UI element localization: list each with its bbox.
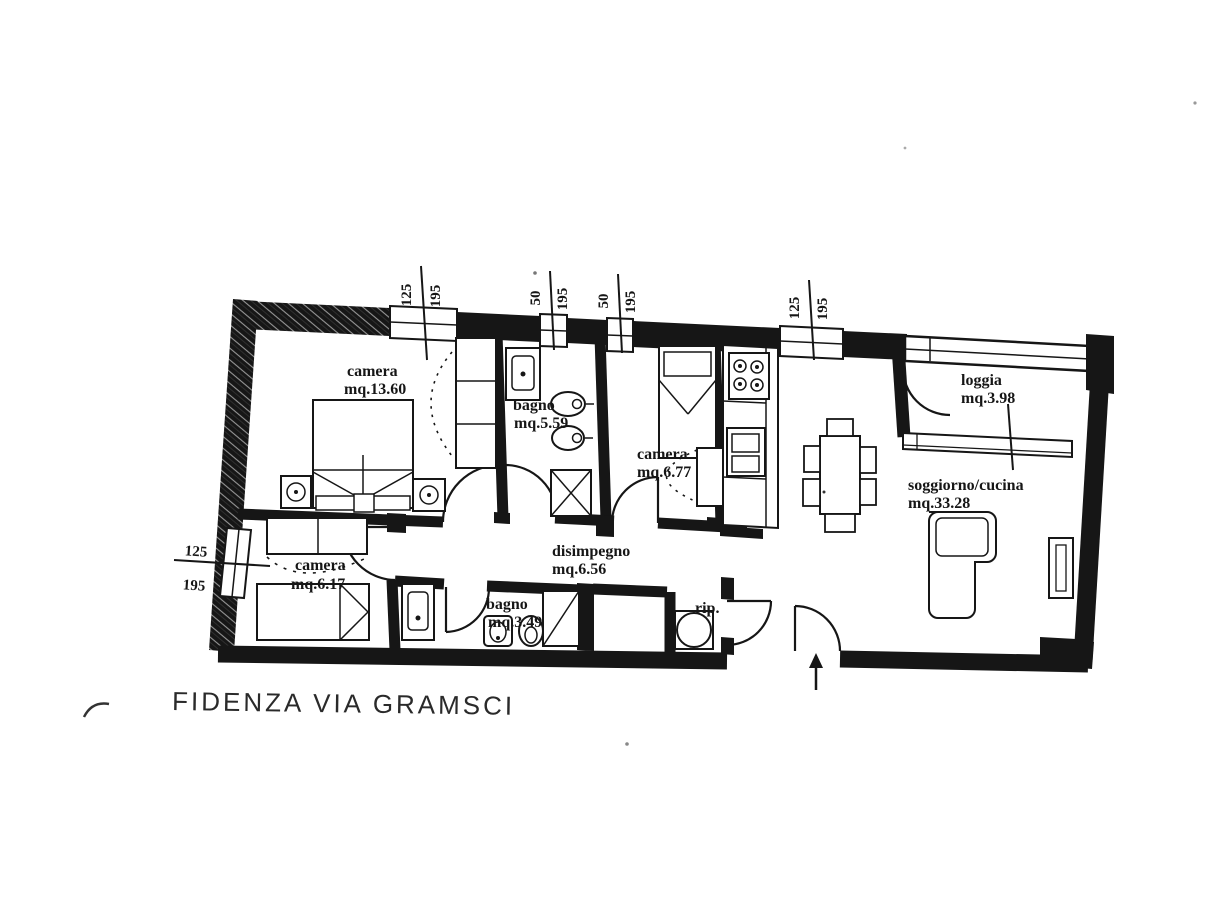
room-label-camera-grande-name: camera xyxy=(347,363,398,380)
dim-label-top-1-w: 125 xyxy=(399,284,415,307)
double-bed-symbol xyxy=(313,400,413,512)
dim-label-top-2-w: 50 xyxy=(528,291,544,306)
wall-junction-nub-3 xyxy=(387,513,406,533)
door-arc-camera1 xyxy=(443,465,500,522)
room-label-soggiorno-area: mq.33.28 xyxy=(908,495,970,512)
shower-symbol xyxy=(543,591,579,646)
wall-bottom-left-segment xyxy=(218,654,727,661)
washbasin-symbol xyxy=(402,584,434,640)
room-label-camera-grande-area: mq.13.60 xyxy=(344,381,406,398)
door-arc-entrance xyxy=(795,606,840,651)
dim-label-left-w: 125 xyxy=(184,543,208,561)
washbasin-symbol xyxy=(506,348,540,400)
room-label-bagno-grande-area: mq.5.59 xyxy=(514,415,568,432)
loggia-parapet xyxy=(903,404,1072,470)
wall-camera3-right-lower xyxy=(392,580,395,650)
wall-rip-right-stub-top xyxy=(721,577,734,600)
wall-top-segment-1 xyxy=(243,301,390,336)
room-label-camera-media-name: camera xyxy=(637,446,688,463)
scan-speck xyxy=(1193,101,1196,104)
dim-label-top-3-w: 50 xyxy=(596,294,612,309)
wall-right xyxy=(1083,358,1101,660)
scan-speck xyxy=(904,147,907,150)
dim-label-top-3-h: 195 xyxy=(623,291,639,314)
toilet-symbol xyxy=(551,392,594,416)
room-label-loggia-name: loggia xyxy=(961,372,1002,389)
nightstand-symbol xyxy=(413,479,445,511)
door-arc-bagno1 xyxy=(505,465,557,517)
room-label-bagno-piccolo-area: mq.3.49 xyxy=(488,614,542,631)
scan-speck xyxy=(625,742,629,746)
parapet-tick xyxy=(1008,404,1013,470)
door-arc-bagno2 xyxy=(446,588,489,632)
wall-kitchen-stub-b xyxy=(720,526,763,539)
stove-symbol xyxy=(729,353,769,399)
door-arc-camera2 xyxy=(612,477,658,523)
single-bed-symbol xyxy=(659,346,716,458)
room-label-bagno-grande-name: bagno xyxy=(513,397,555,414)
page-title: FIDENZA VIA GRAMSCI xyxy=(172,686,515,721)
entrance-arrow-icon xyxy=(809,653,823,690)
shower-symbol xyxy=(551,470,591,516)
radiator-symbol xyxy=(1049,538,1073,598)
wall-left xyxy=(209,299,258,652)
dim-label-top-1-h: 195 xyxy=(428,285,444,308)
room-label-soggiorno-name: soggiorno/cucina xyxy=(908,477,1024,494)
dim-label-left-h: 195 xyxy=(182,577,206,595)
dim-label-top-4-h: 195 xyxy=(815,298,831,321)
scan-speck xyxy=(533,271,537,275)
pen-mark xyxy=(84,704,109,717)
door-arc-loggia xyxy=(903,368,950,415)
wall-bagno1-camera2 xyxy=(600,336,606,519)
wall-junction-nub-1 xyxy=(494,512,510,524)
floor-plan-svg: camera mq.13.60 bagno mq.5.59 camera mq.… xyxy=(0,0,1230,924)
wall-bottom-right-corner xyxy=(1070,640,1094,669)
kitchen-sink-symbol xyxy=(727,428,765,476)
wall-bagno2-top-right xyxy=(487,586,581,590)
room-label-loggia-area: mq.3.98 xyxy=(961,390,1015,407)
wall-void-top xyxy=(593,589,667,592)
window-midline xyxy=(607,335,633,336)
sofa-symbol xyxy=(929,512,996,618)
room-label-disimpegno-name: disimpegno xyxy=(552,543,630,560)
room-label-camera-media-area: mq.6.77 xyxy=(637,464,691,481)
room-label-camera-piccola-area: mq.6.17 xyxy=(291,576,345,593)
room-label-camera-piccola-name: camera xyxy=(295,557,346,574)
dining-table-symbol xyxy=(803,419,876,532)
parapet-symbol xyxy=(903,433,1072,457)
scanned-floor-plan-page: camera mq.13.60 bagno mq.5.59 camera mq.… xyxy=(0,0,1230,924)
nightstand-symbol xyxy=(281,476,311,508)
dim-label-top-4-w: 125 xyxy=(787,297,803,320)
wardrobe-symbol xyxy=(431,338,496,468)
room-label-bagno-piccolo-name: bagno xyxy=(486,596,528,613)
dim-label-top-2-h: 195 xyxy=(555,288,571,311)
room-label-ripostiglio-name: rip. xyxy=(695,600,719,617)
room-label-disimpegno-area: mq.6.56 xyxy=(552,561,606,578)
